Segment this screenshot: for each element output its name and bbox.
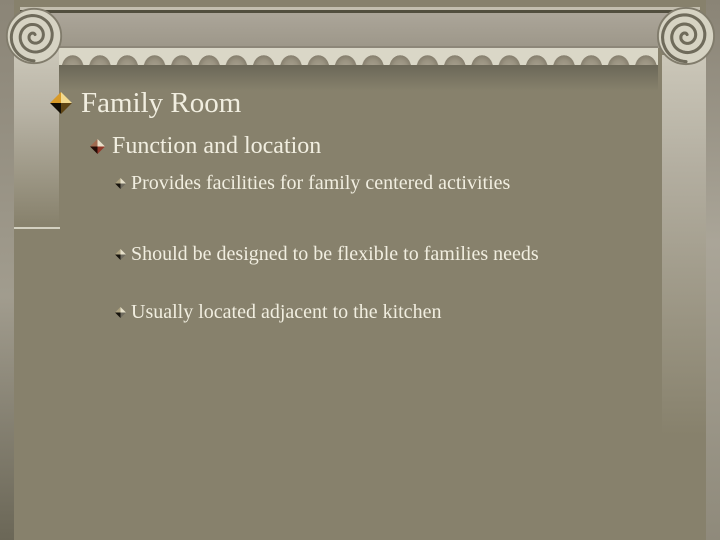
- left-edge-strip: [0, 0, 14, 540]
- level3-bullet-diamond-icon: [115, 307, 126, 318]
- left-column-base-line: [14, 227, 60, 229]
- slide-title: Family Room: [81, 87, 241, 120]
- level3-bullet-diamond-icon: [115, 178, 126, 189]
- ionic-volute-right-icon: [655, 5, 717, 67]
- bullet-text: Should be designed to be flexible to fam…: [131, 243, 539, 266]
- bullet-row-level3: Provides facilities for family centered …: [115, 170, 510, 196]
- ionic-volute-left-icon: [4, 6, 64, 66]
- bullet-row-level3: Should be designed to be flexible to fam…: [115, 241, 539, 267]
- right-edge-strip: [706, 0, 720, 540]
- bullet-row-level3: Usually located adjacent to the kitchen: [115, 299, 441, 325]
- bullet-row-level2: Function and location: [90, 131, 321, 161]
- title-bullet-diamond-icon: [50, 92, 72, 114]
- level2-bullet-diamond-icon: [90, 139, 105, 154]
- left-column-shaft: [14, 50, 59, 225]
- slide-title-row: Family Room: [50, 85, 241, 121]
- bullet-text: Provides facilities for family centered …: [131, 172, 510, 195]
- entablature-frieze-bar: [24, 13, 696, 48]
- presentation-slide: Family Room Function and location Provid…: [0, 0, 720, 540]
- bullet-text: Function and location: [112, 133, 321, 160]
- scallop-molding: [57, 46, 658, 65]
- level3-bullet-diamond-icon: [115, 249, 126, 260]
- bullet-text: Usually located adjacent to the kitchen: [131, 301, 441, 324]
- right-column-shaft: [662, 55, 706, 435]
